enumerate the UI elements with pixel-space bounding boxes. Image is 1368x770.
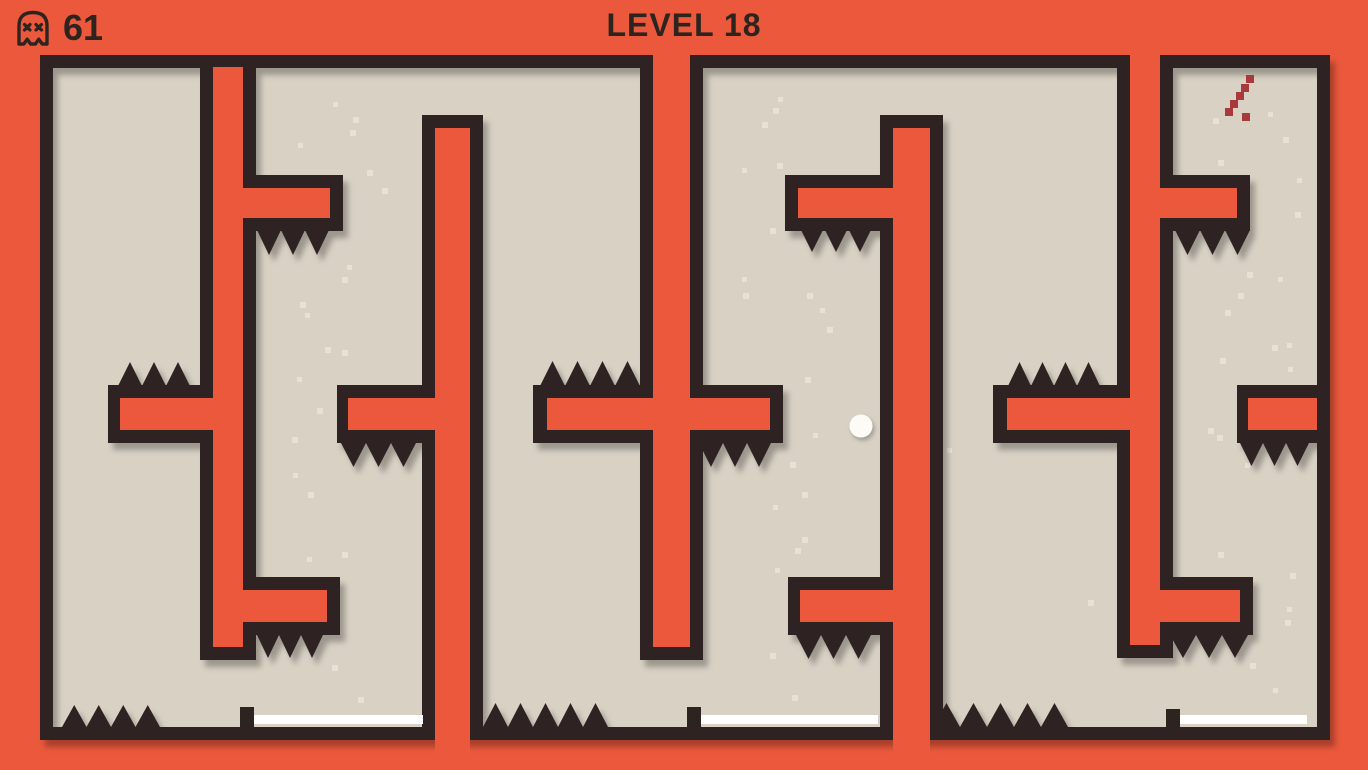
speckle-dot [773,505,778,510]
core-bar-room-c [893,128,930,770]
speckle-dot [1213,118,1219,124]
speckle-dot [1218,160,1224,166]
finish-line-post [1166,709,1180,728]
core-channel-bc [653,0,690,647]
core-mid-arm-left-bc [547,398,657,430]
speckle-dot [742,168,747,173]
core-bottom-arm-cd [1157,590,1240,622]
speckle-dot [1287,607,1292,612]
trail-dot [1225,108,1233,116]
speckle-dot [790,462,796,468]
speckle-dot [1247,272,1253,278]
core-top-arm-room-b [213,188,330,218]
core-mid-arm-room-a [120,398,216,430]
speckle-dot [775,568,780,573]
level-title: LEVEL 18 [0,7,1368,44]
speckle-dot [1272,345,1278,351]
core-channel-ab [213,67,243,647]
speckle-dot [1238,293,1244,299]
speckle-dot [762,122,768,128]
speckle-dot [350,130,356,136]
speckle-dot [292,437,298,443]
speckle-dot [813,433,818,438]
speckle-dot [308,492,314,498]
core-top-arm-room-d [1157,188,1237,218]
speckle-dot [332,665,338,671]
speckle-dot [770,228,776,234]
trail-dot [1246,75,1254,83]
maze-canvas [0,0,1368,770]
speckle-dot [1295,212,1301,218]
speckle-dot [777,163,783,169]
speckle-dot [367,170,373,176]
border-left [40,55,53,740]
finish-line [1180,715,1307,724]
speckle-dot [778,97,783,102]
speckle-dot [1088,600,1094,606]
speckle-dot [827,327,833,333]
speckle-dot [342,350,348,356]
core-mid-arm-right-bc [686,398,770,430]
speckle-dot [305,313,310,318]
maze-playfield[interactable] [0,0,1368,770]
core-bottom-arm-bar-c [800,590,896,622]
finish-line-post [687,707,701,728]
hud-bar: 61 LEVEL 18 [0,0,1368,55]
speckle-dot [802,537,808,543]
speckle-dot [353,117,359,123]
speckle-dot [770,653,776,659]
ball [850,415,873,438]
speckle-dot [297,377,302,382]
speckle-dot [743,293,749,299]
speckle-dot [342,552,348,558]
core-mid-arm-left-cd [1007,398,1133,430]
player-ball [850,415,873,438]
speckle-dot [742,277,747,282]
speckle-dot [1273,688,1278,693]
speckle-dot [1218,552,1224,558]
speckle-dot [1297,178,1302,183]
finish-line [700,715,878,724]
core-bottom-arm-ab [213,590,327,622]
finish-line-post [240,707,254,728]
speckle-dot [1250,663,1256,669]
speckle-dot [820,308,825,313]
speckle-dot [342,277,348,283]
speckle-dot [805,377,811,383]
speckle-dot [358,697,364,703]
speckle-dot [807,293,813,299]
trail-dot [1241,84,1249,92]
speckle-dot [325,347,331,353]
speckle-dot [802,492,808,498]
trail-dot [1230,100,1238,108]
core-mid-arm-room-d [1248,398,1317,430]
speckle-dot [1283,137,1289,143]
core-bar-room-b [435,128,470,770]
speckle-dot [333,102,338,107]
speckle-dot [1268,112,1273,117]
speckle-dot [382,188,388,194]
speckle-dot [795,548,801,554]
speckle-dot [1208,428,1214,434]
core-mid-arm-bar-b [348,398,438,430]
speckle-dot [1225,310,1231,316]
speckle-dot [792,695,798,701]
trail-dot [1242,113,1250,121]
speckle-dot [1287,343,1292,348]
trail-dot [1236,92,1244,100]
speckle-dot [1278,277,1283,282]
border-bottom [40,727,1330,740]
core-top-arm-bar-c [798,188,896,218]
speckle-dot [1245,463,1250,468]
speckle-dot [1288,367,1293,372]
speckle-dot [317,408,323,414]
speckle-dot [293,473,298,478]
speckle-dot [1220,358,1226,364]
core-channel-cd [1130,0,1160,645]
speckle-dot [300,302,306,308]
speckle-dot [347,265,352,270]
speckle-dot [307,557,312,562]
speckle-dot [1285,620,1291,626]
speckle-dot [1290,573,1296,579]
finish-line [253,715,423,724]
speckle-dot [773,108,779,114]
speckle-dot [298,143,303,148]
border-right [1317,55,1330,740]
speckle-dot [947,448,952,453]
speckle-dot [1217,435,1223,441]
